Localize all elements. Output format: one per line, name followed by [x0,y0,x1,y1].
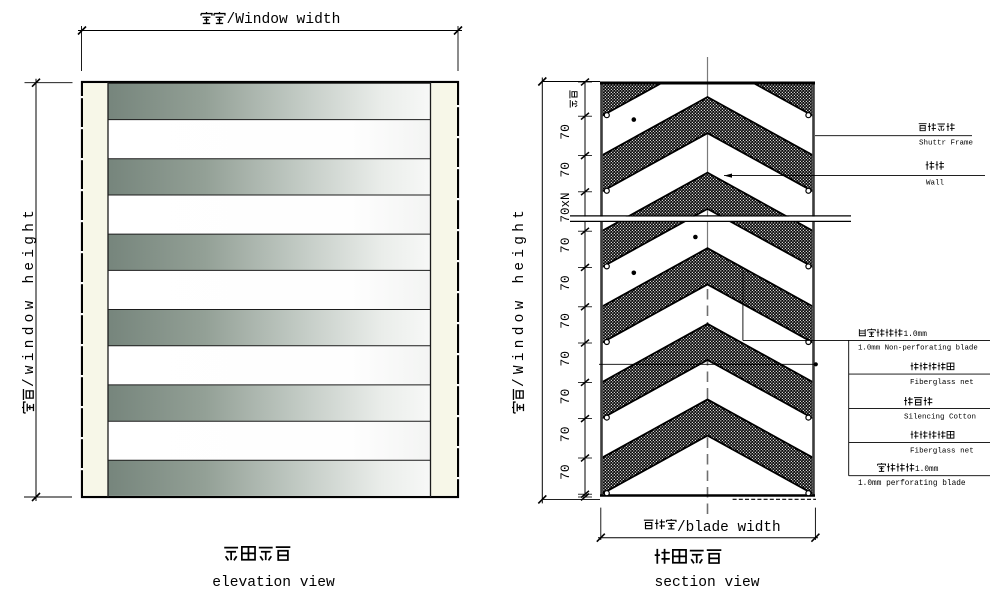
svg-text:70: 70 [558,426,573,442]
svg-text:Silencing Cotton: Silencing Cotton [904,414,976,422]
svg-text:70: 70 [558,389,573,405]
svg-text:70: 70 [558,351,573,367]
svg-text:Shuttr Frame: Shuttr Frame [919,139,973,147]
svg-text:70: 70 [558,313,573,329]
svg-text:section view: section view [654,575,759,591]
svg-text:Wall: Wall [926,179,945,187]
svg-text:Fiberglass net: Fiberglass net [910,379,974,387]
svg-text:70: 70 [558,275,573,291]
svg-text:elevation view: elevation view [212,575,335,591]
svg-text:/Window height: /Window height [512,206,528,387]
svg-text:/Window width: /Window width [227,12,341,28]
svg-text:1.0mm: 1.0mm [904,331,928,339]
svg-text:/window height: /window height [22,206,38,387]
svg-text:70: 70 [558,124,573,140]
svg-text:1.0mm perforating blade: 1.0mm perforating blade [858,480,966,488]
svg-text:/blade width: /blade width [677,520,781,536]
svg-text:Fiberglass net: Fiberglass net [910,448,974,456]
svg-text:70: 70 [558,464,573,480]
svg-text:1.0mm Non-perforating blade: 1.0mm Non-perforating blade [858,345,978,353]
svg-text:1.0mm: 1.0mm [915,466,939,474]
svg-text:70: 70 [558,237,573,253]
svg-text:70: 70 [558,162,573,178]
